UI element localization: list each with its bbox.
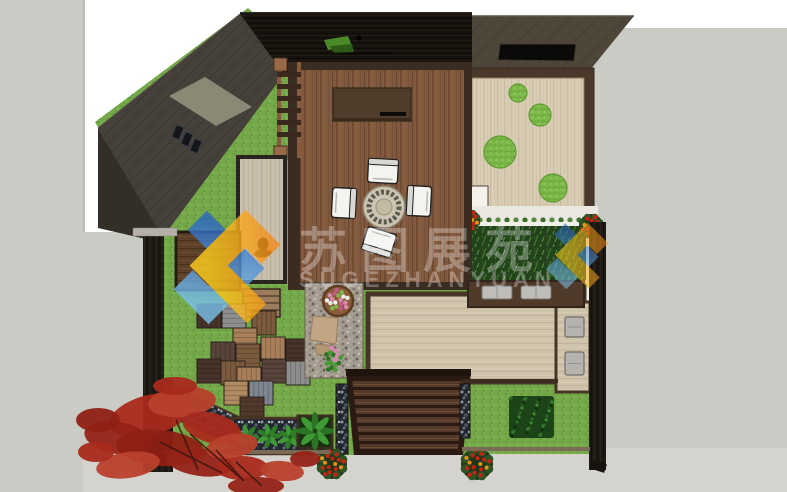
maple-foliage [290,451,320,467]
watermark-text-en: SUGEZHANYUAN [299,267,557,292]
courtyard-rendering: 苏图展苑 SUGEZHANYUAN [0,0,787,492]
moss-circle [484,136,516,168]
entrance-pergola [346,369,471,455]
paving-tile [197,359,221,383]
chair [367,158,398,184]
chair [406,185,432,216]
stepping-stone [310,316,338,344]
paving-tile [261,337,285,361]
moss-circle [529,104,551,126]
roof-skylight [498,44,576,61]
stool [565,352,584,375]
round-dining-table [363,186,405,228]
paving-tile [262,359,286,383]
moss-circle [539,174,567,202]
moss-circle [509,84,527,102]
pebble-strip-left [336,384,348,454]
deck-table [333,88,411,121]
chair [331,187,357,218]
leaf-plant-planter [296,412,334,450]
deck-dark-strip [380,112,406,116]
square-shrub [509,396,554,438]
side-patio-strip [556,302,590,392]
pebble-strip-right [460,384,470,438]
maple-foliage [78,442,114,462]
gravel-bed [305,283,363,378]
maple-foliage [153,377,197,395]
stool [565,317,584,337]
zen-garden [462,68,594,224]
patio-edge [462,379,558,383]
maple-foliage [76,408,120,432]
